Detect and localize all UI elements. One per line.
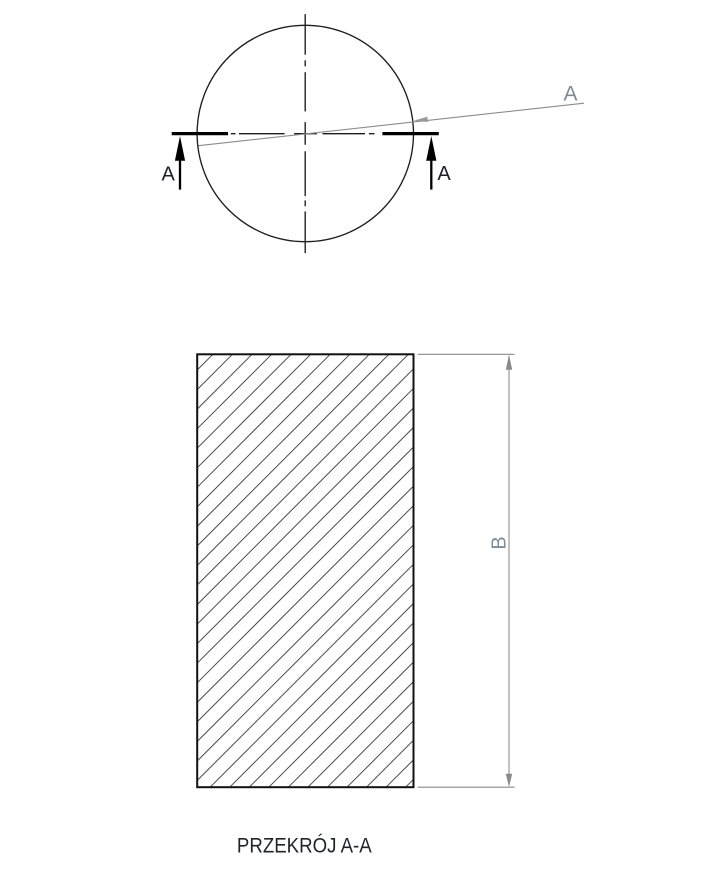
svg-text:A: A — [162, 163, 176, 185]
svg-text:B: B — [488, 536, 510, 549]
svg-text:PRZEKRÓJ A-A: PRZEKRÓJ A-A — [237, 835, 372, 858]
svg-text:A: A — [563, 83, 577, 106]
svg-text:A: A — [437, 163, 451, 185]
